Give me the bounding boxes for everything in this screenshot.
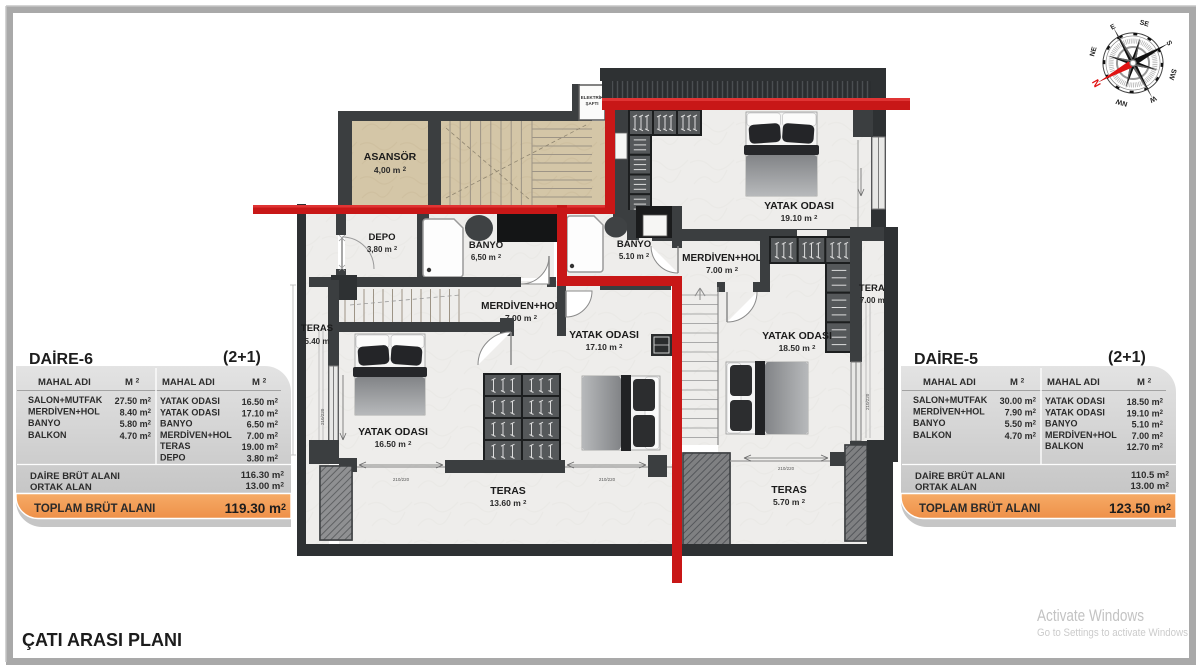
svg-text:YATAK ODASI: YATAK ODASI xyxy=(160,407,220,417)
svg-text:ÇATI ARASI PLANI: ÇATI ARASI PLANI xyxy=(22,630,182,650)
svg-text:210/220: 210/220 xyxy=(393,477,410,482)
svg-text:19.10 m 2: 19.10 m 2 xyxy=(781,213,819,223)
svg-text:116.30 m2: 116.30 m2 xyxy=(241,470,285,481)
svg-text:SALON+MUTFAK: SALON+MUTFAK xyxy=(913,395,988,405)
svg-text:7.00 m2: 7.00 m2 xyxy=(247,431,279,441)
svg-text:ORTAK ALAN: ORTAK ALAN xyxy=(915,482,977,493)
svg-text:12.70 m2: 12.70 m2 xyxy=(1127,442,1164,452)
svg-text:YATAK ODASI: YATAK ODASI xyxy=(358,426,428,438)
svg-text:18.50 m2: 18.50 m2 xyxy=(1127,397,1164,407)
svg-text:MERDİVEN+HOL: MERDİVEN+HOL xyxy=(682,251,762,264)
svg-text:ASANSÖR: ASANSÖR xyxy=(364,150,417,163)
svg-text:TOPLAM BRÜT ALANI: TOPLAM BRÜT ALANI xyxy=(919,502,1040,515)
svg-text:MAHAL ADI: MAHAL ADI xyxy=(923,377,976,388)
svg-text:Activate Windows: Activate Windows xyxy=(1037,607,1144,625)
svg-text:DEPO: DEPO xyxy=(369,232,396,243)
svg-text:5.40 m: 5.40 m xyxy=(305,337,330,346)
svg-text:DAİRE BRÜT ALANI: DAİRE BRÜT ALANI xyxy=(30,471,120,482)
svg-text:YATAK ODASI: YATAK ODASI xyxy=(1045,396,1105,406)
svg-text:5.80 m2: 5.80 m2 xyxy=(120,419,152,429)
svg-text:6,50 m 2: 6,50 m 2 xyxy=(471,253,501,262)
svg-text:YATAK ODASI: YATAK ODASI xyxy=(569,329,639,341)
svg-text:27.50 m2: 27.50 m2 xyxy=(115,396,152,406)
svg-text:16.50 m 2: 16.50 m 2 xyxy=(375,439,413,449)
svg-text:Go to Settings to activate Win: Go to Settings to activate Windows xyxy=(1037,627,1188,639)
svg-text:BANYO: BANYO xyxy=(160,419,193,429)
svg-text:BANYO: BANYO xyxy=(28,418,61,428)
svg-text:YATAK ODASI: YATAK ODASI xyxy=(160,396,220,406)
svg-text:BANYO: BANYO xyxy=(617,239,651,250)
svg-text:YATAK ODASI: YATAK ODASI xyxy=(762,330,832,342)
svg-text:TERAS: TERAS xyxy=(160,441,191,451)
svg-text:5.10 m2: 5.10 m2 xyxy=(1132,420,1164,430)
svg-text:13.00 m2: 13.00 m2 xyxy=(1131,481,1170,492)
svg-text:DAİRE BRÜT ALANI: DAİRE BRÜT ALANI xyxy=(915,471,1005,482)
svg-text:8.40 m2: 8.40 m2 xyxy=(120,408,152,418)
svg-text:YATAK ODASI: YATAK ODASI xyxy=(764,200,834,212)
svg-text:5.10 m 2: 5.10 m 2 xyxy=(619,252,649,261)
svg-text:ELEKTRİK: ELEKTRİK xyxy=(581,94,604,100)
svg-text:16.50 m2: 16.50 m2 xyxy=(242,397,279,407)
svg-text:YATAK ODASI: YATAK ODASI xyxy=(1045,407,1105,417)
svg-text:(2+1): (2+1) xyxy=(223,349,261,366)
svg-text:210/220: 210/220 xyxy=(320,408,325,425)
svg-text:ŞAFTI: ŞAFTI xyxy=(586,101,599,106)
svg-text:MAHAL ADI: MAHAL ADI xyxy=(38,377,91,388)
svg-text:TOPLAM BRÜT ALANI: TOPLAM BRÜT ALANI xyxy=(34,502,155,515)
svg-text:3,80 m 2: 3,80 m 2 xyxy=(367,245,397,254)
svg-text:DAİRE-5: DAİRE-5 xyxy=(914,350,978,368)
svg-text:BANYO: BANYO xyxy=(469,240,503,251)
svg-text:MERDİVEN+HOL: MERDİVEN+HOL xyxy=(913,407,985,417)
svg-text:7.00 m 2: 7.00 m 2 xyxy=(706,265,739,275)
svg-text:30.00 m2: 30.00 m2 xyxy=(1000,396,1037,406)
svg-text:4.70 m2: 4.70 m2 xyxy=(120,431,152,441)
svg-text:SALON+MUTFAK: SALON+MUTFAK xyxy=(28,395,103,405)
svg-text:BALKON: BALKON xyxy=(913,430,952,440)
svg-text:17.10 m2: 17.10 m2 xyxy=(242,408,279,418)
svg-text:110.5 m2: 110.5 m2 xyxy=(1131,470,1169,481)
svg-text:BALKON: BALKON xyxy=(1045,441,1084,451)
svg-text:7.00 m2: 7.00 m2 xyxy=(1132,431,1164,441)
svg-text:18.50 m 2: 18.50 m 2 xyxy=(779,343,817,353)
svg-text:MERDİVEN+HOL: MERDİVEN+HOL xyxy=(160,430,232,440)
svg-text:BANYO: BANYO xyxy=(1045,419,1078,429)
svg-text:4.70 m2: 4.70 m2 xyxy=(1005,431,1037,441)
svg-text:TERAS: TERAS xyxy=(490,485,526,497)
svg-text:TERAS: TERAS xyxy=(771,484,807,496)
svg-text:5.50 m2: 5.50 m2 xyxy=(1005,419,1037,429)
svg-text:210/220: 210/220 xyxy=(778,466,795,471)
svg-text:MAHAL ADI: MAHAL ADI xyxy=(1047,377,1100,388)
svg-text:(2+1): (2+1) xyxy=(1108,349,1146,366)
svg-text:MERDİVEN+HOL: MERDİVEN+HOL xyxy=(481,299,561,312)
svg-text:MERDİVEN+HOL: MERDİVEN+HOL xyxy=(1045,430,1117,440)
svg-text:MAHAL ADI: MAHAL ADI xyxy=(162,377,215,388)
svg-text:BALKON: BALKON xyxy=(28,430,67,440)
svg-text:19.00 m2: 19.00 m2 xyxy=(242,442,279,452)
svg-text:5.70 m 2: 5.70 m 2 xyxy=(773,497,806,507)
svg-text:7.90 m2: 7.90 m2 xyxy=(1005,408,1037,418)
svg-text:6.50 m2: 6.50 m2 xyxy=(247,420,279,430)
svg-text:3.80 m2: 3.80 m2 xyxy=(247,454,279,464)
svg-text:17.10 m 2: 17.10 m 2 xyxy=(586,342,624,352)
svg-text:210/220: 210/220 xyxy=(599,477,616,482)
svg-text:DAİRE-6: DAİRE-6 xyxy=(29,350,93,368)
svg-text:TERAS: TERAS xyxy=(301,323,333,334)
svg-text:4,00 m 2: 4,00 m 2 xyxy=(374,165,407,175)
svg-text:BANYO: BANYO xyxy=(913,418,946,428)
svg-text:210/220: 210/220 xyxy=(865,393,870,410)
svg-text:19.10 m2: 19.10 m2 xyxy=(1127,408,1164,418)
svg-text:123.50 m2: 123.50 m2 xyxy=(1109,501,1171,516)
svg-text:MERDİVEN+HOL: MERDİVEN+HOL xyxy=(28,407,100,417)
svg-text:13.00 m2: 13.00 m2 xyxy=(246,481,285,492)
svg-text:DEPO: DEPO xyxy=(160,453,186,463)
svg-text:119.30 m2: 119.30 m2 xyxy=(225,501,286,516)
svg-text:ORTAK ALAN: ORTAK ALAN xyxy=(30,482,92,493)
svg-text:13.60 m 2: 13.60 m 2 xyxy=(490,498,528,508)
